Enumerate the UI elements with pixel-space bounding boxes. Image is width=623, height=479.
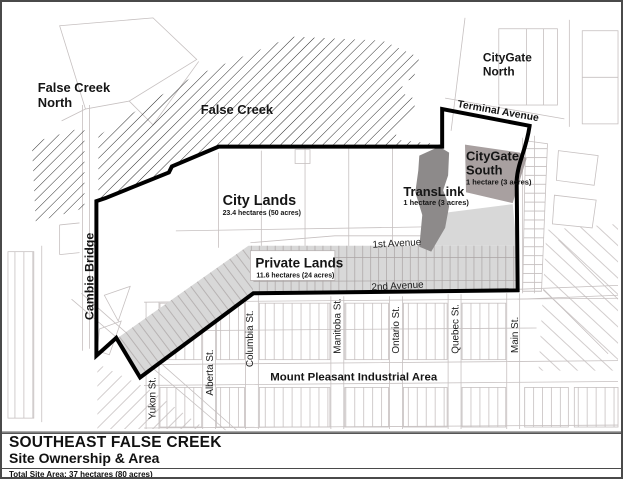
water-main-piece [98, 37, 442, 200]
label-false-creek: False Creek [201, 102, 274, 117]
label-translink: TransLink [403, 184, 465, 199]
street-label-quebec: Quebec St. [451, 304, 462, 353]
label-translink-area: 1 hectare (3 acres) [403, 198, 469, 207]
street-label-ontario: Ontario St. [391, 306, 402, 353]
street-label-cambie-bridge: Cambie Bridge [82, 233, 96, 320]
label-city-lands-area: 23.4 hectares (50 acres) [223, 210, 301, 217]
street-label-yukon: Yukon St. [147, 377, 158, 419]
label-mount-pleasant-industrial-area: Mount Pleasant Industrial Area [270, 371, 438, 383]
sheet-title: SOUTHEAST FALSE CREEK [2, 435, 621, 451]
street-label-manitoba: Manitoba St. [332, 298, 343, 354]
map-canvas: False Creek North False Creek CityGate N… [2, 2, 621, 431]
label-city-lands: City Lands [223, 193, 297, 209]
water-left-piece [32, 127, 85, 222]
street-label-columbia: Columbia St. [245, 311, 256, 368]
label-citygate-north-line2: North [483, 64, 515, 78]
total-site-area: Total Site Area: 37 hectares (80 acres) [2, 470, 621, 479]
street-label-main: Main St. [510, 317, 521, 353]
label-private-lands-area: 11.6 hectares (24 acres) [256, 272, 334, 279]
label-false-creek-north-line1: False Creek [38, 80, 111, 95]
title-block: SOUTHEAST FALSE CREEK Site Ownership & A… [2, 434, 621, 478]
map-sheet: False Creek North False Creek CityGate N… [0, 0, 623, 479]
label-citygate-north-line1: CityGate [483, 50, 532, 64]
label-citygate-south-line2: South [466, 162, 503, 177]
sheet-subtitle: Site Ownership & Area [2, 451, 621, 466]
label-private-lands: Private Lands [255, 256, 343, 271]
label-citygate-south-line1: CityGate [466, 149, 519, 164]
label-citygate-south-area: 1 hectare (3 acres) [466, 177, 532, 186]
titleblock-separator [2, 468, 621, 469]
label-false-creek-north-line2: North [38, 95, 73, 110]
street-label-alberta: Alberta St. [205, 349, 216, 395]
